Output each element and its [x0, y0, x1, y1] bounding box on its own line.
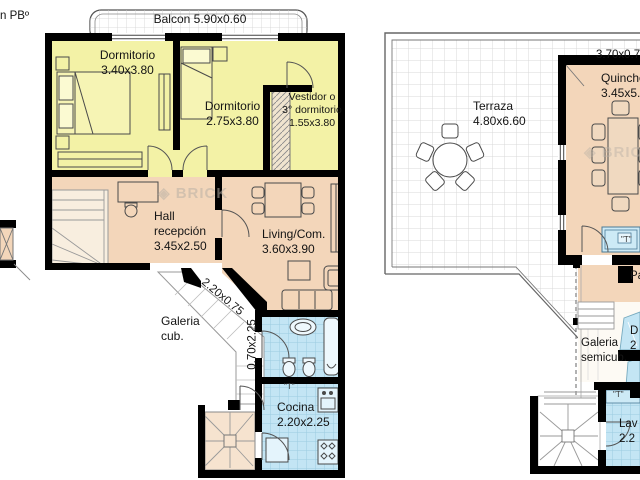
room-name2: semicub. [581, 351, 627, 366]
room-name: Living/Com. [262, 227, 325, 242]
passage-dim-vertical: 0.70x2.25 [246, 305, 261, 385]
corner-note: n PBº [0, 9, 29, 24]
room-size: 3.60x3.90 [262, 242, 325, 257]
room-label-pa-fragment: Pa [630, 269, 640, 284]
room-name2: cub. [161, 329, 200, 344]
room-size: 3.45x5.8 [601, 86, 640, 101]
room-label-terraza: Terraza 4.80x6.60 [473, 99, 526, 129]
room-label-galeria-cub: Galeria cub. [161, 314, 200, 344]
room-label-galeria-semicub: Galeria semicub. [581, 336, 627, 366]
room-name: Hall [154, 209, 207, 224]
brick-watermark-2: ◈ BRICK [584, 145, 640, 161]
room-label-quincho: Quincho 3.45x5.8 [601, 71, 640, 101]
room-name2: 3° dormitorio [281, 104, 343, 117]
brick-watermark-text: BRICK [602, 144, 640, 161]
room-label-lavadero: Lav 2.2 [619, 417, 638, 447]
room-size: 2 [630, 339, 638, 354]
room-name: Dormitorio [195, 99, 270, 114]
room-name: D [630, 324, 638, 339]
floor2-steps [578, 302, 614, 329]
room-name: Lav [619, 417, 638, 432]
floor1-left-edge-structure [0, 228, 30, 280]
room-size: 1.55x3.80 [281, 117, 343, 130]
room-label-dormitorio1: Dormitorio 3.40x3.80 [85, 48, 170, 78]
room-size: 2.20x2.25 [277, 415, 330, 430]
brick-logo-icon: ◈ [158, 185, 171, 202]
room-label-living: Living/Com. 3.60x3.90 [262, 227, 325, 257]
tap-symbol-quincho: "T" [621, 235, 632, 244]
room-label-cut-fragment: D 2 [630, 324, 638, 354]
brick-watermark-text: BRICK [176, 185, 229, 202]
room-size: 3.45x2.50 [154, 239, 207, 254]
room-label-vestidor: Vestidor o 3° dormitorio 1.55x3.80 [281, 91, 343, 130]
room-label-dormitorio2: Dormitorio 2.75x3.80 [195, 99, 270, 129]
room-name: Quincho [601, 71, 640, 86]
brick-logo-icon: ◈ [584, 144, 597, 161]
room-name: Vestidor o [281, 91, 343, 104]
room-size: 3.40x3.80 [85, 63, 170, 78]
room-name: Galeria [161, 314, 200, 329]
room-label-hall: Hall recepción 3.45x2.50 [154, 209, 207, 254]
room-name: Dormitorio [85, 48, 170, 63]
balcony-label: Balcon 5.90x0.60 [120, 12, 280, 27]
room-size: 2.75x3.80 [195, 114, 270, 129]
room-size: 2.2 [619, 432, 638, 447]
brick-watermark-1: ◈ BRICK [158, 186, 228, 202]
tap-symbol-kitchen: "T" [284, 382, 295, 391]
room-label-cocina: Cocina 2.20x2.25 [277, 400, 330, 430]
front-dim-label: 3.70x0.7 [596, 48, 640, 63]
room-name: Cocina [277, 400, 330, 415]
room-name: Galeria [581, 336, 627, 351]
room-size: 4.80x6.60 [473, 114, 526, 129]
tap-symbol-lavadero: "T" [613, 390, 624, 399]
room-name2: recepción [154, 224, 207, 239]
floorplan-canvas: n PBº Balcon 5.90x0.60 Dormitorio 3.40x3… [0, 0, 640, 480]
room-name: Terraza [473, 99, 526, 114]
